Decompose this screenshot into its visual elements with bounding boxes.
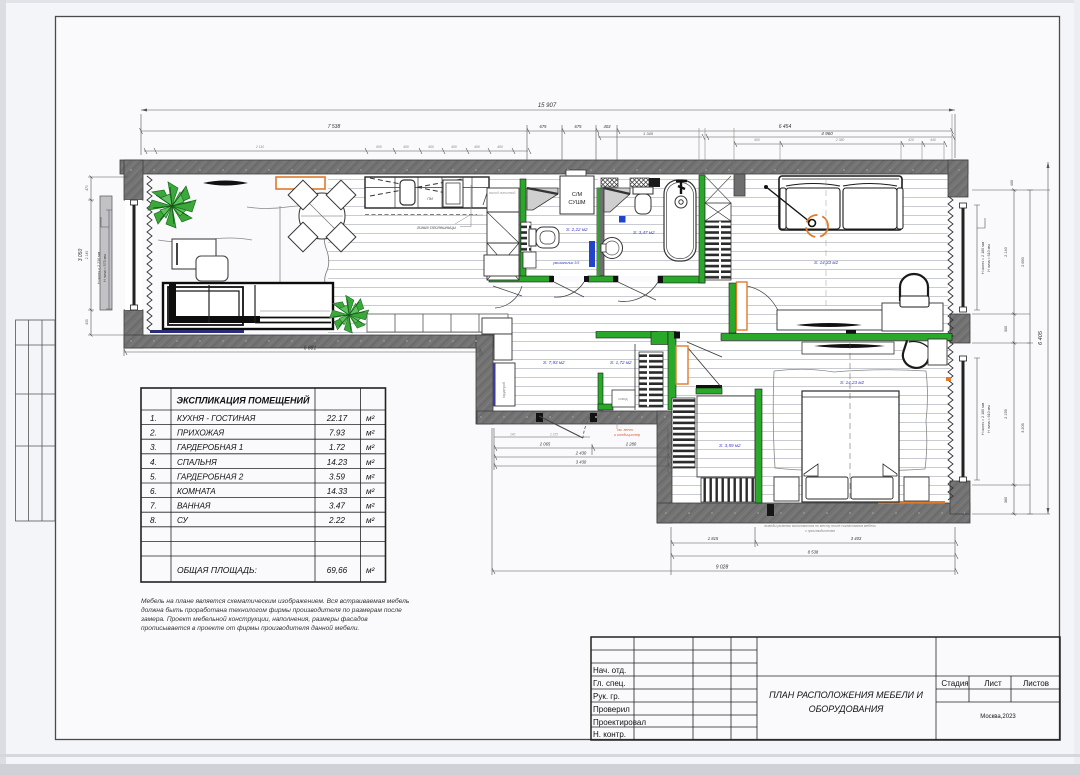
- svg-text:СПАЛЬНЯ: СПАЛЬНЯ: [177, 458, 217, 467]
- svg-text:м²: м²: [366, 414, 375, 423]
- svg-text:450: 450: [451, 145, 457, 149]
- svg-text:м²: м²: [366, 566, 375, 575]
- svg-text:675: 675: [540, 124, 548, 129]
- svg-text:Гл. спец.: Гл. спец.: [593, 679, 626, 688]
- svg-text:с производителем: с производителем: [805, 529, 835, 533]
- svg-text:ОБЩАЯ ПЛОЩАДЬ:: ОБЩАЯ ПЛОЩАДЬ:: [177, 565, 258, 575]
- svg-text:1.: 1.: [150, 414, 157, 423]
- svg-text:1.72: 1.72: [329, 443, 345, 452]
- svg-text:470: 470: [85, 185, 89, 191]
- svg-text:м²: м²: [366, 487, 375, 496]
- svg-text:м²: м²: [366, 516, 375, 525]
- svg-text:S: 7,93 м2: S: 7,93 м2: [543, 360, 565, 365]
- svg-text:Лист: Лист: [984, 679, 1002, 688]
- svg-text:6 881: 6 881: [304, 346, 317, 352]
- svg-text:КОМНАТА: КОМНАТА: [177, 487, 216, 496]
- svg-text:СУ: СУ: [177, 516, 188, 525]
- svg-text:Проектировал: Проектировал: [593, 718, 646, 727]
- svg-text:ВАННАЯ: ВАННАЯ: [177, 502, 211, 511]
- svg-text:7.93: 7.93: [329, 429, 345, 438]
- svg-text:3 205: 3 205: [1021, 423, 1025, 433]
- svg-text:2.22: 2.22: [328, 516, 345, 525]
- svg-text:Н низа = 575 мм: Н низа = 575 мм: [103, 254, 107, 282]
- svg-text:ПРИХОЖАЯ: ПРИХОЖАЯ: [177, 429, 224, 438]
- svg-text:7.: 7.: [150, 502, 157, 511]
- svg-text:2 065: 2 065: [539, 442, 551, 447]
- svg-text:ПМ: ПМ: [427, 197, 433, 201]
- svg-text:Стадия: Стадия: [941, 679, 968, 688]
- svg-text:8.: 8.: [150, 516, 157, 525]
- svg-text:С/М: С/М: [572, 192, 583, 198]
- svg-text:Рук. гр.: Рук. гр.: [593, 692, 620, 701]
- svg-text:300: 300: [1004, 326, 1008, 332]
- svg-text:Н оконч = 2 230 мм: Н оконч = 2 230 мм: [97, 251, 101, 284]
- svg-text:должна быть проработана технол: должна быть проработана технологом фирмы…: [141, 606, 402, 614]
- svg-text:S: 3,59 м2: S: 3,59 м2: [719, 443, 741, 448]
- svg-text:линия столешницы: линия столешницы: [416, 225, 456, 230]
- svg-text:S: 3,47 м2: S: 3,47 м2: [633, 230, 655, 235]
- svg-text:69,66: 69,66: [327, 566, 348, 575]
- svg-text:S: 14,33 м2: S: 14,33 м2: [814, 260, 839, 265]
- svg-text:1 815: 1 815: [708, 536, 719, 541]
- svg-text:440: 440: [930, 138, 936, 142]
- svg-text:2 280: 2 280: [625, 442, 637, 447]
- svg-text:2.: 2.: [149, 429, 157, 438]
- svg-text:14.33: 14.33: [327, 487, 348, 496]
- svg-text:450: 450: [497, 145, 503, 149]
- svg-text:S: 1,72 м2: S: 1,72 м2: [610, 360, 632, 365]
- svg-text:м²: м²: [366, 472, 375, 481]
- svg-text:2 430: 2 430: [575, 451, 587, 456]
- svg-text:ЭКСПЛИКАЦИЯ ПОМЕЩЕНИЙ: ЭКСПЛИКАЦИЯ ПОМЕЩЕНИЙ: [177, 395, 310, 406]
- svg-text:2 195: 2 195: [1004, 409, 1008, 419]
- svg-text:Мебель на плане является схема: Мебель на плане является схематическим и…: [141, 597, 410, 605]
- svg-text:3 403: 3 403: [851, 536, 862, 541]
- svg-text:450: 450: [474, 145, 480, 149]
- svg-text:7 538: 7 538: [328, 124, 341, 130]
- svg-text:4.: 4.: [150, 458, 157, 467]
- svg-text:400: 400: [1010, 180, 1014, 186]
- svg-text:и кондиционер: и кондиционер: [614, 433, 640, 437]
- svg-text:Н оконч = 2 180 мм: Н оконч = 2 180 мм: [981, 241, 985, 274]
- svg-text:Н. контр.: Н. контр.: [593, 730, 626, 739]
- svg-text:Н оконч = 2 180 мм: Н оконч = 2 180 мм: [981, 402, 985, 435]
- svg-text:360: 360: [1004, 497, 1008, 503]
- svg-text:8 538: 8 538: [808, 550, 819, 555]
- svg-text:ГАРДЕРОБНАЯ 2: ГАРДЕРОБНАЯ 2: [177, 472, 244, 481]
- svg-text:S: 2,22 м2: S: 2,22 м2: [566, 227, 588, 232]
- svg-text:Нач. отд.: Нач. отд.: [593, 666, 626, 675]
- svg-text:900: 900: [754, 138, 760, 142]
- svg-text:S: 14,23 м2: S: 14,23 м2: [840, 380, 865, 385]
- svg-text:2 110: 2 110: [255, 145, 264, 149]
- svg-text:3.47: 3.47: [329, 502, 345, 511]
- svg-text:450: 450: [428, 145, 434, 149]
- svg-text:замера. Проект мебельной конст: замера. Проект мебельной конструкции, на…: [140, 615, 368, 623]
- svg-text:Н низа = 610 мм: Н низа = 610 мм: [987, 244, 991, 272]
- svg-text:ПЛАН РАСПОЛОЖЕНИЯ МЕБЕЛИ И: ПЛАН РАСПОЛОЖЕНИЯ МЕБЕЛИ И: [769, 690, 923, 700]
- svg-text:ОБОРУДОВАНИЯ: ОБОРУДОВАНИЯ: [809, 704, 885, 714]
- svg-text:м²: м²: [366, 502, 375, 511]
- svg-text:14.23: 14.23: [327, 458, 348, 467]
- svg-text:3.: 3.: [150, 443, 157, 452]
- svg-text:3 430: 3 430: [576, 460, 587, 465]
- svg-text:гардероб: гардероб: [502, 381, 506, 398]
- svg-text:403: 403: [604, 124, 612, 129]
- svg-text:комод: комод: [619, 397, 628, 401]
- svg-text:см. вент: см. вент: [617, 428, 633, 432]
- svg-text:3.59: 3.59: [329, 472, 345, 481]
- svg-text:600: 600: [376, 145, 382, 149]
- svg-text:2 155: 2 155: [549, 433, 558, 437]
- svg-text:420: 420: [908, 138, 914, 142]
- svg-text:2 140: 2 140: [1004, 247, 1008, 257]
- svg-text:5.: 5.: [150, 472, 157, 481]
- svg-text:3 050: 3 050: [78, 249, 84, 262]
- svg-text:умывальник 3/3: умывальник 3/3: [552, 261, 579, 265]
- svg-text:22.17: 22.17: [326, 414, 348, 423]
- svg-text:6 454: 6 454: [779, 124, 792, 130]
- svg-text:675: 675: [575, 124, 583, 129]
- svg-text:м²: м²: [366, 443, 375, 452]
- svg-text:240: 240: [509, 433, 516, 437]
- svg-text:Листов: Листов: [1023, 679, 1049, 688]
- svg-text:435: 435: [85, 319, 89, 325]
- svg-text:КУХНЯ - ГОСТИНАЯ: КУХНЯ - ГОСТИНАЯ: [177, 414, 256, 423]
- svg-text:выход питьевой: выход питьевой: [489, 191, 515, 195]
- svg-text:2 690: 2 690: [1021, 257, 1025, 267]
- svg-text:15 907: 15 907: [538, 103, 557, 109]
- svg-text:450: 450: [403, 145, 409, 149]
- svg-text:м²: м²: [366, 458, 375, 467]
- svg-text:прописывается в проекте от фир: прописывается в проекте от фирмы произво…: [141, 624, 360, 632]
- svg-text:СУШМ: СУШМ: [568, 200, 586, 206]
- svg-text:2 380: 2 380: [835, 138, 845, 142]
- svg-text:Проверил: Проверил: [593, 705, 630, 714]
- svg-text:Н низа = 610 мм: Н низа = 610 мм: [987, 405, 991, 433]
- svg-text:Москва,2023: Москва,2023: [980, 714, 1016, 720]
- svg-text:ГАРДЕРОБНАЯ 1: ГАРДЕРОБНАЯ 1: [177, 443, 243, 452]
- svg-text:выводы розеток выполняются по: выводы розеток выполняются по месту посл…: [764, 524, 875, 528]
- svg-text:6 405: 6 405: [1038, 330, 1044, 345]
- svg-text:4 960: 4 960: [821, 131, 833, 136]
- svg-text:6.: 6.: [150, 487, 157, 496]
- svg-text:9 028: 9 028: [716, 565, 729, 571]
- svg-text:2 145: 2 145: [85, 251, 89, 260]
- svg-text:м²: м²: [366, 429, 375, 438]
- svg-text:1 345: 1 345: [643, 131, 654, 136]
